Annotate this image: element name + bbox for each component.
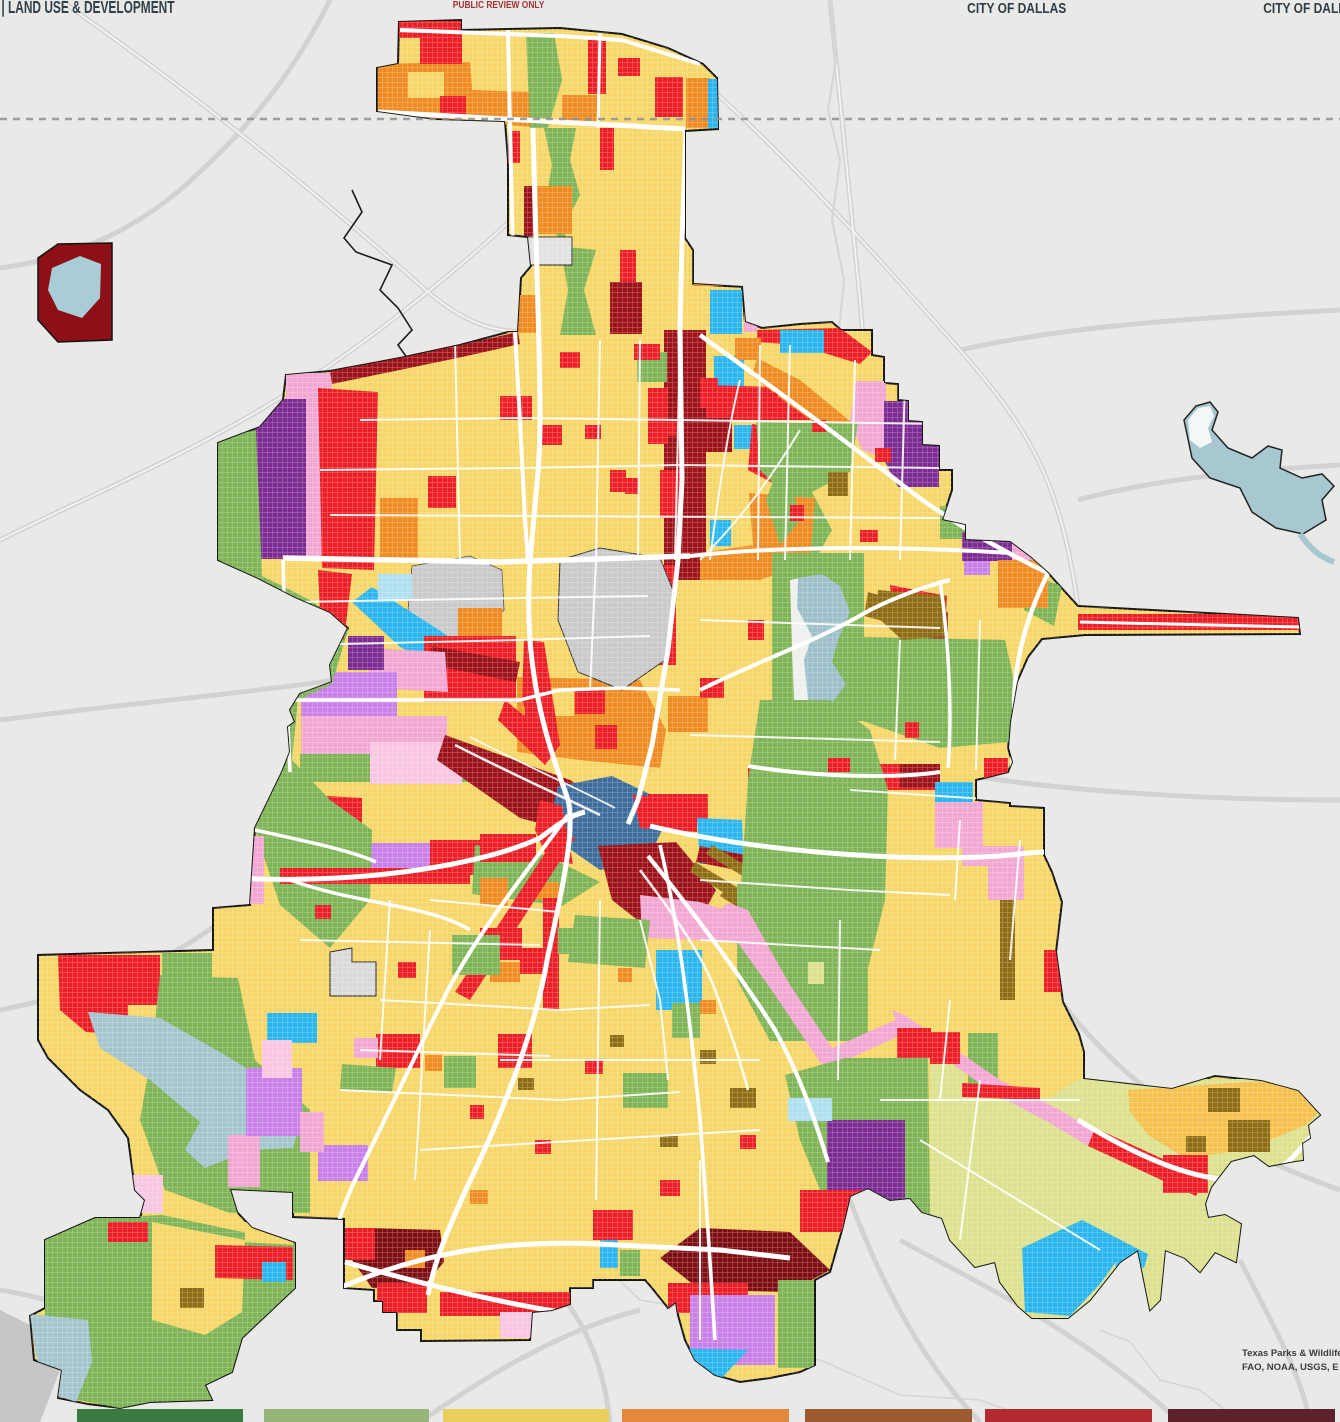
svg-text:CITY OF DALLAS: CITY OF DALLAS <box>1263 0 1340 16</box>
svg-text:FAO, NOAA, USGS, E: FAO, NOAA, USGS, E <box>1242 1362 1339 1373</box>
svg-text:| LAND USE & DEVELOPMENT: | LAND USE & DEVELOPMENT <box>1 0 174 18</box>
svg-text:CITY OF DALLAS: CITY OF DALLAS <box>967 0 1066 16</box>
svg-text:PUBLIC REVIEW ONLY: PUBLIC REVIEW ONLY <box>453 0 545 11</box>
svg-text:Texas Parks & Wildlife,: Texas Parks & Wildlife, <box>1242 1348 1340 1359</box>
